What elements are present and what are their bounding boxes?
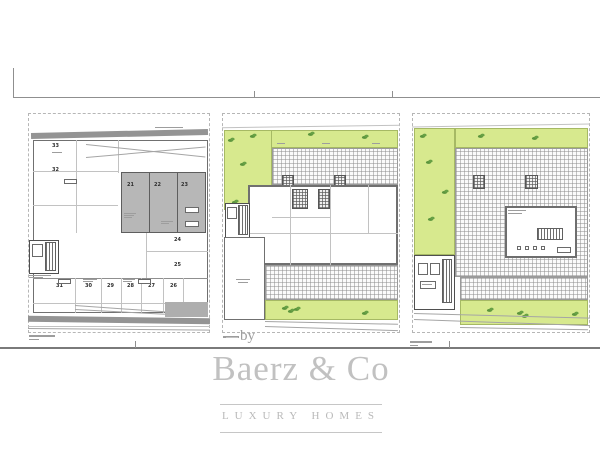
paved-area [165,302,208,317]
terrace-hatch [265,265,398,300]
wall-line [146,251,208,252]
grid-line [33,205,118,206]
parking-stall-number: 29 [107,284,114,289]
bathroom-hatch [318,189,330,209]
stall-divider [177,172,178,233]
dimension-text [322,143,330,144]
plan-caption [29,339,39,340]
annotation-text [83,281,93,282]
elevator [418,263,428,275]
road-line [28,326,210,327]
elevator [430,263,440,275]
sheet-left-stub [13,68,14,98]
furniture [525,246,529,250]
bottom-rule-tick [449,341,450,348]
annotation-text [29,275,51,276]
grid-line [118,140,119,173]
stair-treads [537,228,563,240]
wall-line [146,233,147,278]
furniture [533,246,537,250]
grid-line [33,171,118,172]
stair-treads [238,205,248,235]
interior-wall [368,185,369,233]
terrace-hatch [460,277,588,300]
parking-stall-number: 31 [56,284,63,289]
watermark-brand: Baerz & Co [206,350,396,388]
annotation-text [123,279,135,280]
top-rule-tick [392,91,393,98]
skylight [473,175,485,189]
interior-wall [248,233,398,234]
annotation-text [508,210,526,211]
room-number: 24 [174,238,181,243]
label-tag [64,179,77,184]
plan-caption [410,345,418,346]
room-number: 25 [174,263,181,268]
parking-stall-number: 23 [181,183,188,188]
lawn-area [414,128,455,255]
parking-stall-number: 30 [85,284,92,289]
interior-wall [290,185,291,265]
elevator [227,207,237,219]
lawn-area [455,128,588,148]
dimension-text [372,143,380,144]
floor-plan-garage: 33 32 21 22 23 24 25 [28,113,210,333]
plan-caption [29,335,55,337]
annotation-text [155,127,183,128]
room-number: 33 [52,144,59,149]
room-number: 32 [52,168,59,173]
annotation-text [124,213,136,214]
interior-wall [272,217,330,218]
annotation-text [123,281,132,282]
stall-divider [149,172,150,233]
stall-divider [75,278,76,313]
drawing-sheet: 33 32 21 22 23 24 25 [0,0,600,450]
grid-line [76,140,77,233]
label-tag [420,281,436,289]
watermark-rule [220,404,382,405]
top-rule-tick [254,91,255,98]
counter [557,247,571,253]
stall-divider [163,278,164,313]
annotation-text [161,221,173,222]
parking-stall-number: 22 [154,183,161,188]
label-tag [58,279,71,284]
bottom-rule-tick [135,341,136,348]
plan-caption [410,341,432,343]
parking-stall-number: 21 [127,183,134,188]
annotation-text [508,213,522,214]
elevator [32,244,43,257]
label-tag [185,207,199,213]
watermark-by: by [240,328,255,345]
annotation-text [83,279,97,280]
annotation-text [124,215,134,216]
furniture [517,246,521,250]
caption-dash [226,337,238,338]
watermark-rule [220,432,382,433]
annotation-text [124,217,132,218]
dimension-text [236,279,250,280]
parking-stall-number: 28 [127,284,134,289]
area-text [52,152,62,153]
watermark-tagline: LUXURY HOMES [206,410,396,422]
parking-stall-number: 27 [148,284,155,289]
interior-wall [330,185,331,265]
bathroom-hatch [292,189,308,209]
skylight [525,175,538,189]
floor-plan-roof [412,113,590,333]
floor-plan-bedrooms [222,113,400,333]
dimension-text [277,143,285,144]
label-tag [185,221,199,227]
dimension-text [422,284,432,285]
stair-treads [442,259,452,303]
annotation-text [161,223,169,224]
stair-treads [45,242,56,271]
parking-stall-number: 26 [170,284,177,289]
dimension-text [238,282,248,283]
label-tag [138,279,151,284]
sheet-top-rule [13,97,600,98]
furniture [541,246,545,250]
